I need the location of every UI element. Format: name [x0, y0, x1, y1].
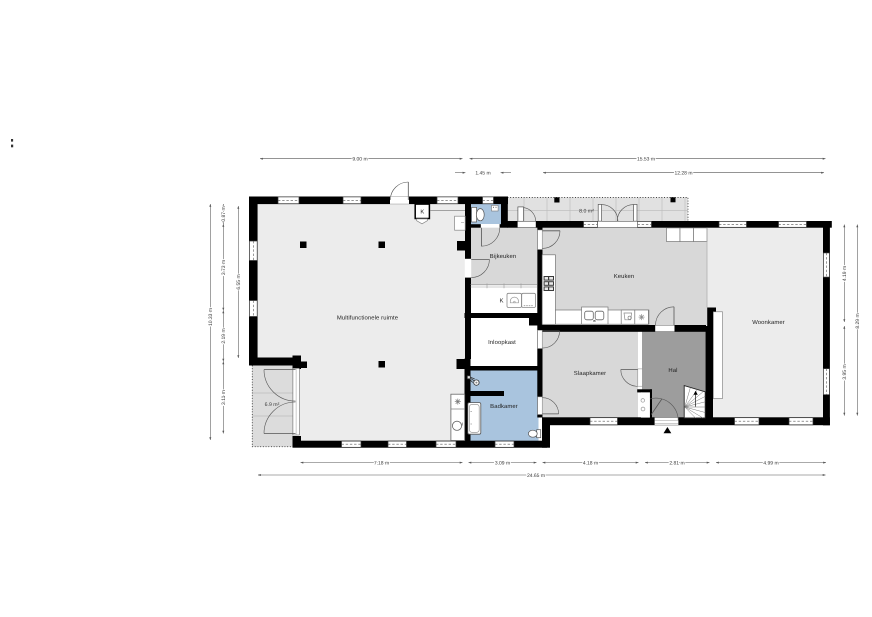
svg-text:4.19 m: 4.19 m: [842, 266, 848, 281]
svg-text:0.87 m: 0.87 m: [221, 206, 227, 221]
svg-text:1.45 m: 1.45 m: [475, 171, 490, 177]
svg-text:Hal: Hal: [668, 367, 677, 374]
svg-text:4.99 m: 4.99 m: [763, 461, 778, 467]
svg-text:K: K: [499, 298, 503, 305]
svg-text:2.19 m: 2.19 m: [221, 328, 227, 343]
svg-text:Badkamer: Badkamer: [490, 403, 518, 410]
svg-text:8.29 m: 8.29 m: [855, 313, 861, 328]
svg-text:9.00 m: 9.00 m: [352, 157, 367, 163]
svg-text:15.53 m: 15.53 m: [637, 157, 655, 163]
svg-text:3.73 m: 3.73 m: [221, 260, 227, 275]
svg-text:10.33 m: 10.33 m: [208, 308, 214, 326]
svg-text:7.18 m: 7.18 m: [374, 461, 389, 467]
svg-text:12.28 m: 12.28 m: [674, 171, 692, 177]
svg-text:Slaapkamer: Slaapkamer: [574, 370, 606, 377]
svg-text:2.81 m: 2.81 m: [669, 461, 684, 467]
svg-text:4.18 m: 4.18 m: [583, 461, 598, 467]
svg-text:3.11 m: 3.11 m: [221, 390, 227, 405]
svg-text:3.09 m: 3.09 m: [495, 461, 510, 467]
svg-text:24.65 m: 24.65 m: [527, 473, 545, 479]
svg-text:3.95 m: 3.95 m: [842, 364, 848, 379]
svg-text:Woonkamer: Woonkamer: [752, 319, 785, 326]
svg-text:6.55 m: 6.55 m: [236, 274, 242, 289]
svg-text:8.0 m²: 8.0 m²: [579, 209, 594, 215]
svg-text:Keuken: Keuken: [614, 273, 635, 280]
svg-text:6.9 m²: 6.9 m²: [265, 402, 280, 408]
svg-text:Multifunctionele ruimte: Multifunctionele ruimte: [337, 315, 399, 322]
svg-text:K: K: [420, 210, 424, 216]
svg-text:Bijkeuken: Bijkeuken: [490, 253, 516, 260]
svg-text:Inloopkast: Inloopkast: [488, 339, 516, 346]
